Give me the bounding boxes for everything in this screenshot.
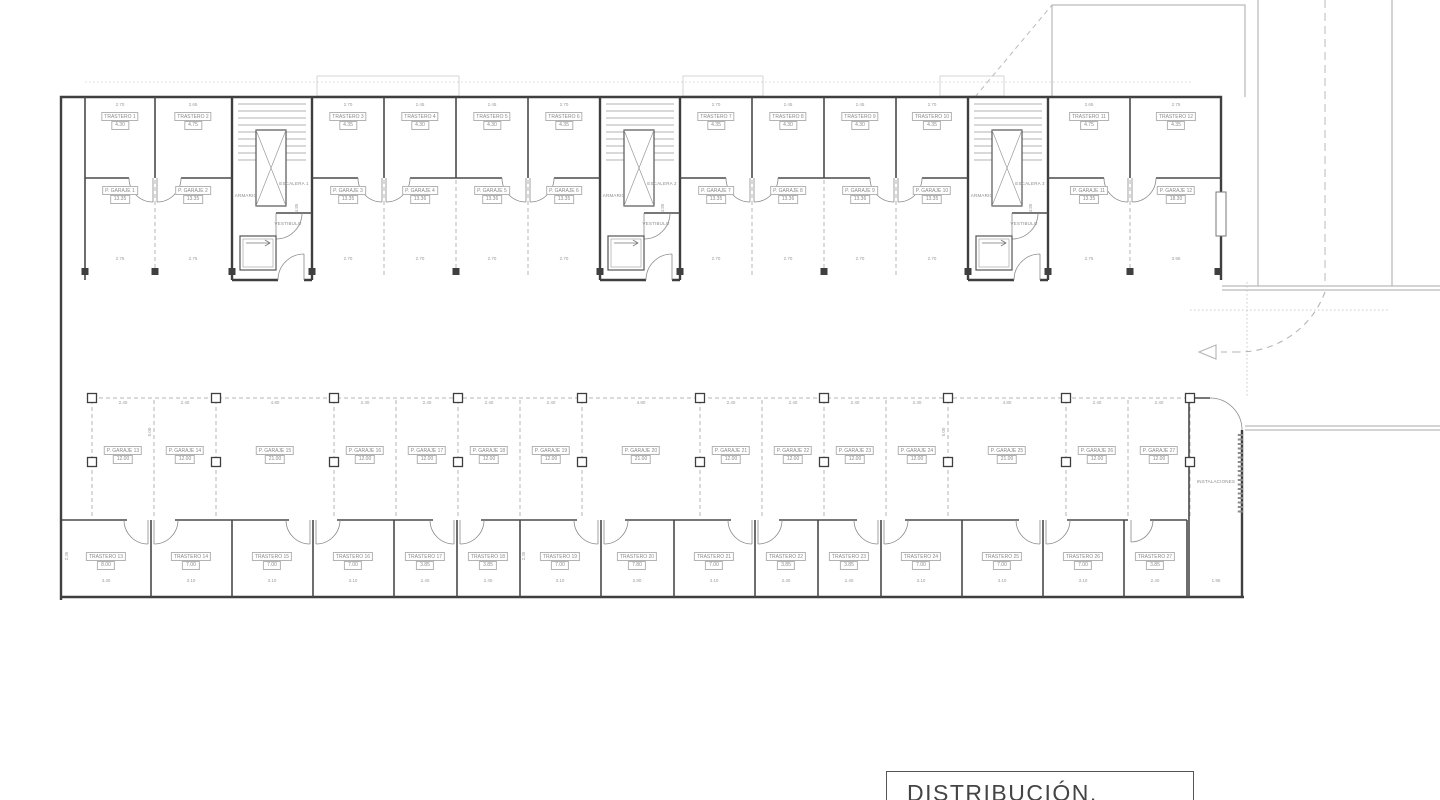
storage-label: TRASTERO 233.85 xyxy=(829,552,869,570)
garaje-label: P. GARAJE 613.35 xyxy=(546,186,582,204)
dim-label: 3.10 xyxy=(998,579,1007,584)
dim-label: 2.40 xyxy=(1155,401,1164,406)
dim-label: 1.95 xyxy=(1212,579,1221,584)
vestibulo-label: VESTIBULO xyxy=(274,222,301,227)
room-area: 12.00 xyxy=(175,455,196,464)
parking-label: P. GARAJE 1312.00 xyxy=(104,446,142,464)
dim-label: 2.40 xyxy=(789,401,798,406)
room-area: 18.30 xyxy=(1166,195,1187,204)
parking-label: P. GARAJE 2021.00 xyxy=(622,446,660,464)
trastero-label: TRASTERO 104.35 xyxy=(912,112,952,130)
room-area: 12.00 xyxy=(783,455,804,464)
dim-label: 2.70 xyxy=(560,257,569,262)
trastero-label: TRASTERO 74.35 xyxy=(697,112,734,130)
dim-label: 4.85 xyxy=(1029,204,1034,213)
dim-label: 2.40 xyxy=(421,579,430,584)
dim-label: 2.40 xyxy=(782,579,791,584)
vestibulo-label: VESTIBULO xyxy=(642,222,669,227)
parking-label: P. GARAJE 2521.00 xyxy=(988,446,1026,464)
dim-label: 2.45 xyxy=(856,103,865,108)
garaje-label: P. GARAJE 713.35 xyxy=(698,186,734,204)
dim-label: 2.40 xyxy=(845,579,854,584)
dim-label: 4.85 xyxy=(661,204,666,213)
stair-core-1 xyxy=(232,104,312,280)
dim-label: 2.40 xyxy=(1151,579,1160,584)
dim-label: 3.10 xyxy=(917,579,926,584)
room-area: 13.35 xyxy=(706,195,727,204)
room-area: 12.00 xyxy=(1087,455,1108,464)
room-area: 3.85 xyxy=(777,561,795,570)
room-area: 13.36 xyxy=(482,195,503,204)
storage-label: TRASTERO 167.00 xyxy=(333,552,373,570)
dim-label: 3.10 xyxy=(268,579,277,584)
dim-label: 2.65 xyxy=(189,103,198,108)
room-area: 13.36 xyxy=(778,195,799,204)
ramp-lines xyxy=(1052,0,1440,430)
trastero-label: TRASTERO 94.30 xyxy=(841,112,878,130)
instalaciones-door-arc xyxy=(1210,398,1242,430)
parking-label: P. GARAJE 1521.00 xyxy=(256,446,294,464)
dim-label: 2.35 xyxy=(522,552,527,561)
room-area: 12.00 xyxy=(1149,455,1170,464)
room-area: 12.00 xyxy=(721,455,742,464)
room-area: 8.00 xyxy=(97,561,115,570)
storage-label: TRASTERO 217.00 xyxy=(694,552,734,570)
dim-label: 2.75 xyxy=(1085,257,1094,262)
parking-label: P. GARAJE 1812.00 xyxy=(470,446,508,464)
dim-label: 5.00 xyxy=(148,428,153,437)
room-area: 4.75 xyxy=(184,121,202,130)
storage-label: TRASTERO 157.00 xyxy=(252,552,292,570)
dim-label: 2.40 xyxy=(119,401,128,406)
storage-label: TRASTERO 197.00 xyxy=(540,552,580,570)
title-block: DISTRIBUCIÓN. xyxy=(886,771,1194,800)
room-area: 12.00 xyxy=(355,455,376,464)
storage-label: TRASTERO 207.80 xyxy=(617,552,657,570)
room-area: 7.00 xyxy=(551,561,569,570)
room-area: 21.00 xyxy=(997,455,1018,464)
dim-label: 2.40 xyxy=(547,401,556,406)
garaje-label: P. GARAJE 313.35 xyxy=(330,186,366,204)
room-area: 4.30 xyxy=(851,121,869,130)
room-area: 13.35 xyxy=(554,195,575,204)
storage-label: TRASTERO 247.00 xyxy=(901,552,941,570)
dim-label: 2.70 xyxy=(116,103,125,108)
bottom-band-doors xyxy=(124,520,1153,544)
parking-label: P. GARAJE 1712.00 xyxy=(408,446,446,464)
dim-label: 3.95 xyxy=(1172,257,1181,262)
room-area: 4.30 xyxy=(411,121,429,130)
garaje-label: P. GARAJE 1013.35 xyxy=(913,186,951,204)
room-area: 7.00 xyxy=(263,561,281,570)
room-area: 4.30 xyxy=(483,121,501,130)
room-area: 3.85 xyxy=(416,561,434,570)
dim-label: 2.45 xyxy=(416,103,425,108)
trastero-label: TRASTERO 64.35 xyxy=(545,112,582,130)
trastero-label: TRASTERO 124.35 xyxy=(1156,112,1196,130)
room-area: 12.00 xyxy=(113,455,134,464)
stair-label: ESCALERA 3 xyxy=(1015,182,1045,187)
room-area: 12.00 xyxy=(541,455,562,464)
room-area: 7.00 xyxy=(1074,561,1092,570)
dim-label: 2.70 xyxy=(344,103,353,108)
room-area: 4.35 xyxy=(923,121,941,130)
page-title: DISTRIBUCIÓN. xyxy=(907,780,1193,800)
room-area: 4.30 xyxy=(111,121,129,130)
storage-label: TRASTERO 147.00 xyxy=(171,552,211,570)
dim-label: 3.10 xyxy=(349,579,358,584)
dim-label: 4.80 xyxy=(1003,401,1012,406)
parking-label: P. GARAJE 1612.00 xyxy=(346,446,384,464)
dim-label: 2.70 xyxy=(928,103,937,108)
parking-label: P. GARAJE 2712.00 xyxy=(1140,446,1178,464)
room-area: 13.36 xyxy=(850,195,871,204)
dim-label: 2.70 xyxy=(712,257,721,262)
room-area: 7.00 xyxy=(344,561,362,570)
armario-label: ARMARIO xyxy=(971,194,993,199)
dim-label: 4.80 xyxy=(637,401,646,406)
dim-label: 2.40 xyxy=(913,401,922,406)
garaje-label: P. GARAJE 513.36 xyxy=(474,186,510,204)
dim-label: 2.70 xyxy=(416,257,425,262)
room-area: 4.35 xyxy=(707,121,725,130)
storage-label: TRASTERO 267.00 xyxy=(1063,552,1103,570)
instalaciones-label: INSTALACIONES xyxy=(1197,480,1235,485)
dim-label: 2.40 xyxy=(485,401,494,406)
storage-label: TRASTERO 173.85 xyxy=(405,552,445,570)
dim-label: 4.80 xyxy=(271,401,280,406)
dim-label: 2.65 xyxy=(1085,103,1094,108)
dim-label: 4.85 xyxy=(295,204,300,213)
room-area: 3.85 xyxy=(840,561,858,570)
room-area: 7.00 xyxy=(705,561,723,570)
room-area: 12.00 xyxy=(907,455,928,464)
storage-label: TRASTERO 138.00 xyxy=(86,552,126,570)
parking-label: P. GARAJE 1912.00 xyxy=(532,446,570,464)
trastero-label: TRASTERO 14.30 xyxy=(101,112,138,130)
stair-label: ESCALERA 2 xyxy=(647,182,677,187)
dim-label: 2.70 xyxy=(784,257,793,262)
storage-label: TRASTERO 273.85 xyxy=(1135,552,1175,570)
parking-label: P. GARAJE 1412.00 xyxy=(166,446,204,464)
parking-label: P. GARAJE 2112.00 xyxy=(712,446,750,464)
dim-label: 2.70 xyxy=(856,257,865,262)
room-area: 12.00 xyxy=(479,455,500,464)
dim-label: 2.40 xyxy=(1093,401,1102,406)
trastero-label: TRASTERO 24.75 xyxy=(174,112,211,130)
wall-vent xyxy=(1216,192,1226,236)
upper-floor-projection xyxy=(85,76,1193,96)
room-area: 7.00 xyxy=(912,561,930,570)
dim-label: 5.00 xyxy=(942,428,947,437)
room-area: 13.35 xyxy=(110,195,131,204)
parking-label: P. GARAJE 2312.00 xyxy=(836,446,874,464)
armario-label: ARMARIO xyxy=(235,194,257,199)
armario-label: ARMARIO xyxy=(603,194,625,199)
garaje-label: P. GARAJE 1218.30 xyxy=(1157,186,1195,204)
trastero-label: TRASTERO 84.30 xyxy=(769,112,806,130)
garaje-label: P. GARAJE 813.36 xyxy=(770,186,806,204)
dim-label: 2.70 xyxy=(344,257,353,262)
dim-label: 2.75 xyxy=(116,257,125,262)
room-area: 7.00 xyxy=(182,561,200,570)
dim-label: 3.10 xyxy=(710,579,719,584)
garaje-label: P. GARAJE 413.36 xyxy=(402,186,438,204)
storage-label: TRASTERO 183.85 xyxy=(468,552,508,570)
garaje-label: P. GARAJE 913.36 xyxy=(842,186,878,204)
dim-label: 2.40 xyxy=(181,401,190,406)
garaje-label: P. GARAJE 1113.35 xyxy=(1070,186,1108,204)
dim-label: 3.10 xyxy=(187,579,196,584)
room-area: 12.00 xyxy=(845,455,866,464)
room-area: 4.75 xyxy=(1080,121,1098,130)
dim-label: 3.10 xyxy=(1079,579,1088,584)
room-area: 21.00 xyxy=(265,455,286,464)
room-area: 12.00 xyxy=(417,455,438,464)
dim-label: 2.75 xyxy=(1172,103,1181,108)
dim-label: 2.70 xyxy=(560,103,569,108)
storage-label: TRASTERO 223.85 xyxy=(766,552,806,570)
trastero-label: TRASTERO 114.75 xyxy=(1069,112,1109,130)
dim-label: 2.40 xyxy=(484,579,493,584)
dim-label: 3.10 xyxy=(556,579,565,584)
parking-label: P. GARAJE 2412.00 xyxy=(898,446,936,464)
room-area: 13.35 xyxy=(183,195,204,204)
floor-plan-page: 2.70 TRASTERO 14.30 P. GARAJE 113.35 2.7… xyxy=(0,0,1440,800)
dim-label: 2.70 xyxy=(488,257,497,262)
room-area: 7.00 xyxy=(993,561,1011,570)
storage-label: TRASTERO 257.00 xyxy=(982,552,1022,570)
room-area: 7.80 xyxy=(628,561,646,570)
dim-label: 2.40 xyxy=(851,401,860,406)
dim-label: 2.45 xyxy=(488,103,497,108)
dim-label: 2.40 xyxy=(727,401,736,406)
parking-label: P. GARAJE 2212.00 xyxy=(774,446,812,464)
trastero-label: TRASTERO 34.35 xyxy=(329,112,366,130)
stair-label: ESCALERA 1 xyxy=(279,182,309,187)
dim-label: 3.40 xyxy=(102,579,111,584)
dim-label: 2.40 xyxy=(361,401,370,406)
vestibulo-label: VESTIBULO xyxy=(1010,222,1037,227)
dim-label: 2.45 xyxy=(784,103,793,108)
dim-label: 2.80 xyxy=(633,579,642,584)
room-area: 21.00 xyxy=(631,455,652,464)
room-area: 4.35 xyxy=(1167,121,1185,130)
room-area: 3.85 xyxy=(1146,561,1164,570)
trastero-label: TRASTERO 54.30 xyxy=(473,112,510,130)
room-area: 4.35 xyxy=(555,121,573,130)
room-area: 3.85 xyxy=(479,561,497,570)
dim-label: 2.40 xyxy=(423,401,432,406)
garaje-label: P. GARAJE 213.35 xyxy=(175,186,211,204)
room-area: 4.35 xyxy=(339,121,357,130)
trastero-label: TRASTERO 44.30 xyxy=(401,112,438,130)
room-area: 13.35 xyxy=(922,195,943,204)
room-area: 13.35 xyxy=(1079,195,1100,204)
stair-core-2 xyxy=(600,104,680,280)
garaje-label: P. GARAJE 113.35 xyxy=(102,186,138,204)
circulation-arrow xyxy=(1199,292,1325,359)
dim-label: 2.70 xyxy=(928,257,937,262)
stair-core-3 xyxy=(968,104,1048,280)
room-area: 13.35 xyxy=(338,195,359,204)
dim-label: 2.75 xyxy=(189,257,198,262)
room-area: 4.30 xyxy=(779,121,797,130)
dim-label: 2.35 xyxy=(65,552,70,561)
room-area: 13.36 xyxy=(410,195,431,204)
dim-label: 2.70 xyxy=(712,103,721,108)
parking-label: P. GARAJE 2612.00 xyxy=(1078,446,1116,464)
